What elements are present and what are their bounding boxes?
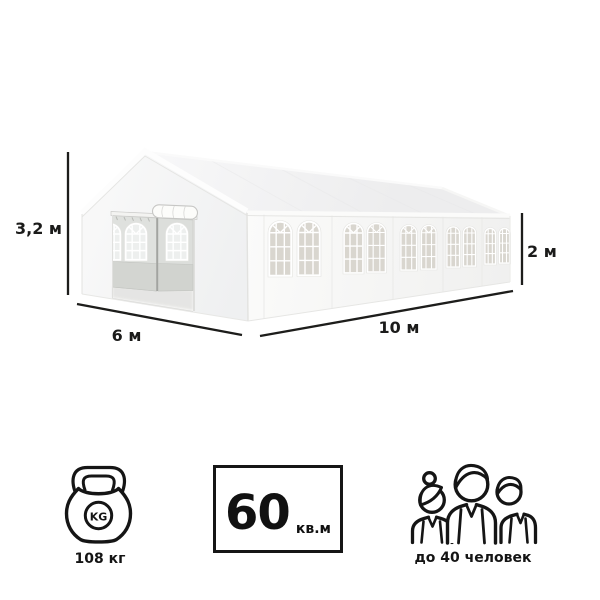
weight-label: 108 кг	[40, 550, 160, 568]
dimension-front-width-label: 6 м	[96, 326, 157, 346]
area-badge: 60 кв.м	[213, 465, 343, 553]
tent	[82, 151, 511, 321]
arched-window	[421, 225, 438, 271]
kettlebell-icon: KG	[67, 468, 131, 542]
area-value: 60	[225, 489, 290, 537]
arched-window	[400, 225, 418, 272]
person-man-center	[448, 465, 496, 543]
product-image: KG 3,2 м 6 м 10 м 2 м	[0, 0, 600, 600]
door-roll	[152, 204, 198, 219]
capacity-label: до 40 человек	[403, 549, 543, 567]
kettlebell-kg-text: KG	[90, 511, 108, 524]
dimension-side-length-label: 10 м	[369, 318, 429, 338]
area-unit: кв.м	[296, 522, 331, 536]
dimension-wall-height-label: 2 м	[527, 242, 557, 262]
corner-post	[247, 213, 248, 321]
arched-window	[343, 223, 364, 274]
arched-window	[484, 227, 497, 265]
arched-window	[268, 221, 293, 278]
arched-window	[166, 223, 189, 261]
arched-window	[499, 228, 511, 265]
arched-window	[367, 223, 387, 274]
arched-window	[463, 226, 477, 267]
arched-window	[446, 226, 461, 268]
door-panel-right-band	[158, 264, 193, 292]
person-man-right	[497, 478, 536, 543]
door-panel-left-band	[113, 262, 157, 292]
kettlebell-handle-inner	[83, 476, 114, 490]
arched-window	[125, 223, 148, 262]
dimension-height-label: 3,2 м	[8, 219, 62, 239]
arched-window	[297, 221, 321, 277]
people-group-icon	[413, 465, 536, 543]
